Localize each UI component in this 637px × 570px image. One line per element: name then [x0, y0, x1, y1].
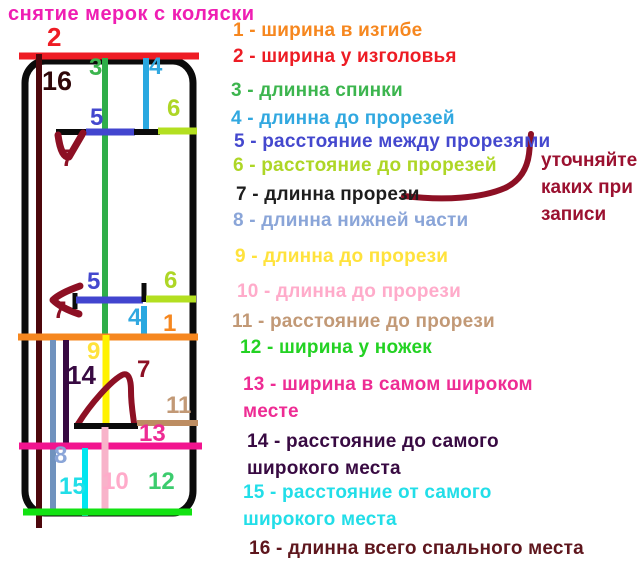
legend-item-8: 8 - длинна нижней части	[233, 208, 593, 234]
diagram-label-16: 16	[42, 68, 72, 95]
legend-item-10: 10 - длинна до прорези	[237, 279, 597, 305]
diagram-label-5b: 5	[87, 270, 100, 294]
diagram-label-7b: 7	[53, 299, 66, 323]
legend-item-5: 5 - расстояние между прорезями	[234, 129, 594, 155]
clarification-note: уточняйте каких при записи	[541, 147, 636, 228]
legend-item-15: 15 - расстояние от самого широкого места	[243, 479, 603, 533]
diagram-label-8: 8	[54, 444, 67, 468]
diagram-label-14: 14	[67, 362, 96, 388]
diagram-label-6b: 6	[164, 269, 177, 293]
diagram-label-7c: 7	[137, 358, 150, 382]
legend-item-16: 16 - длинна всего спального места	[249, 536, 609, 562]
legend-item-12: 12 - ширина у ножек	[240, 335, 600, 361]
legend-item-3: 3 - длинна спинки	[231, 78, 591, 104]
diagram-label-1: 1	[163, 312, 176, 336]
diagram-label-2: 2	[47, 24, 61, 50]
diagram-label-11: 11	[166, 394, 191, 418]
diagram-label-6a: 6	[167, 97, 180, 121]
legend-item-6: 6 - расстояние до прорезей	[233, 153, 593, 179]
paint-canvas: снятие мерок с коляски	[0, 0, 637, 570]
legend-item-13: 13 - ширина в самом широком месте	[243, 371, 603, 425]
diagram-label-4b: 4	[128, 306, 141, 330]
legend-item-2: 2 - ширина у изголовья	[233, 44, 593, 70]
legend-item-1: 1 - ширина в изгибе	[233, 18, 593, 44]
diagram-label-10: 10	[102, 470, 129, 494]
diagram-label-4a: 4	[149, 55, 162, 79]
diagram-label-7a: 7	[61, 147, 74, 171]
diagram-label-3: 3	[89, 56, 102, 80]
diagram-label-15: 15	[59, 475, 86, 499]
diagram-label-13: 13	[139, 422, 166, 446]
legend-item-9: 9 - длинна до прорези	[235, 244, 595, 270]
legend-item-14: 14 - расстояние до самого широкого места	[247, 428, 607, 482]
diagram-label-5a: 5	[90, 106, 103, 130]
legend-item-11: 11 - расстояние до прорези	[232, 309, 592, 335]
diagram-label-12: 12	[148, 470, 175, 494]
